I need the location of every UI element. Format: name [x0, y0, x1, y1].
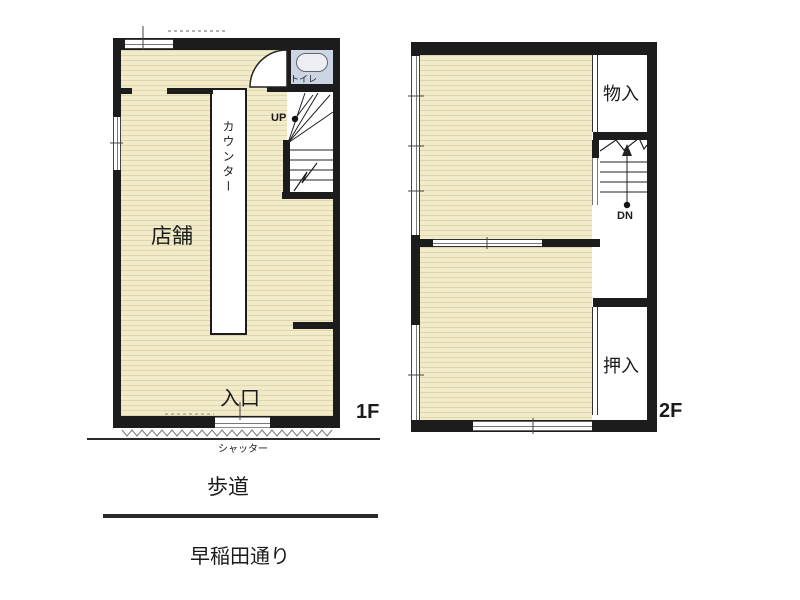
- window-1f-top: [125, 39, 173, 49]
- shutter-zigzag-icon: [122, 430, 332, 436]
- shop-label: 店舗: [151, 220, 193, 250]
- counter-label: カウンター: [220, 120, 237, 195]
- window-2f-left-upper: [411, 56, 420, 235]
- tatami-room-lower: [420, 247, 592, 420]
- stairwell-1f: [287, 92, 333, 192]
- wall-2f-right: [647, 42, 657, 432]
- stairs-down-label: DN: [617, 210, 633, 222]
- wall-stair-newel-1f: [283, 140, 290, 196]
- wall-stair-bottom-1f: [282, 192, 337, 199]
- closet-door: [592, 307, 598, 415]
- toilet-fixture-icon: [296, 53, 328, 72]
- wall-1f-right: [333, 38, 340, 428]
- stairs-up-label: UP: [271, 112, 286, 124]
- wall-partition-right: [542, 239, 600, 247]
- wall-stair-door-header: [592, 140, 599, 158]
- sidewalk-label: 歩道: [207, 471, 249, 501]
- floor-plan-canvas: 店舗 カウンター トイレ UP 入口 1F シャッター 歩道 早稲田通り 物入 …: [0, 0, 800, 600]
- stair-door-2f: [592, 158, 598, 205]
- wall-closet-top: [593, 298, 657, 307]
- toilet-label: トイレ: [290, 72, 317, 85]
- window-2f-left-lower: [411, 325, 420, 420]
- storage-door: [592, 55, 598, 132]
- sliding-door-partition: [433, 239, 542, 247]
- entrance-label: 入口: [220, 382, 260, 411]
- wall-1f-mid: [167, 88, 213, 94]
- wall-toilet-bottom: [267, 84, 338, 92]
- storage-label: 物入: [603, 80, 639, 106]
- floor2-label: 2F: [659, 400, 682, 423]
- shutter-label: シャッター: [218, 440, 268, 455]
- wall-1f-left: [113, 38, 121, 428]
- closet-label: 押入: [603, 352, 639, 378]
- wall-1f-right-stub: [293, 322, 333, 329]
- road-label: 早稲田通り: [190, 540, 290, 569]
- window-2f-bottom: [473, 421, 592, 431]
- tatami-room-upper: [420, 55, 592, 239]
- entrance-opening: [215, 417, 270, 428]
- wall-storage-bottom: [593, 132, 657, 140]
- wall-1f-stub-left: [113, 88, 132, 94]
- wall-2f-top: [411, 42, 657, 55]
- floor1-label: 1F: [356, 401, 379, 424]
- wall-partition-left: [411, 239, 433, 247]
- window-1f-left: [113, 117, 121, 170]
- road-edge-line: [103, 514, 378, 518]
